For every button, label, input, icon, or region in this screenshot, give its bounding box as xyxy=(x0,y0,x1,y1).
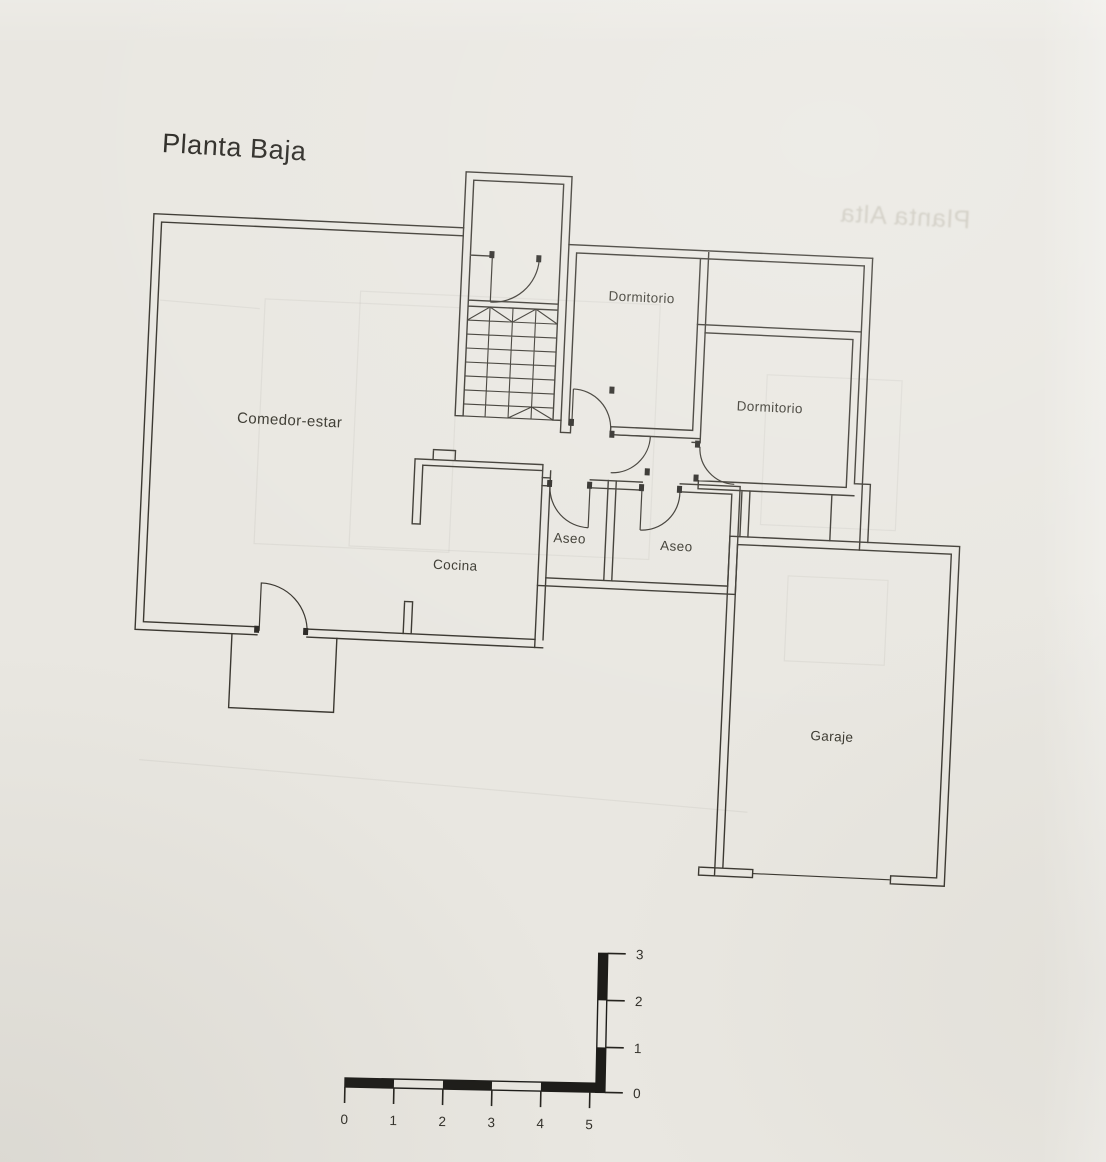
scale-h-label-3: 3 xyxy=(487,1115,495,1130)
staircase xyxy=(463,306,558,420)
entrance-door xyxy=(259,583,309,633)
wall-dormitorio-top xyxy=(560,245,872,451)
room-label-aseo-left: Aseo xyxy=(553,530,586,546)
scale-h-label-0: 0 xyxy=(340,1112,348,1127)
scale-v-label-0: 0 xyxy=(633,1086,641,1101)
room-label-dormitorio-right: Dormitorio xyxy=(736,398,803,416)
wall-cocina xyxy=(403,449,552,648)
scale-bar-vertical xyxy=(596,953,608,1092)
scale-h-label-2: 2 xyxy=(438,1114,446,1129)
scale-v-label-1: 1 xyxy=(634,1041,642,1056)
scale-h-label-4: 4 xyxy=(536,1116,544,1131)
floor-plan-canvas: Comedor-estar Dormitorio Dormitorio Coci… xyxy=(0,0,1106,1162)
scale-h-label-1: 1 xyxy=(389,1113,397,1128)
garage-door-line xyxy=(753,874,891,880)
wall-comedor xyxy=(135,214,561,648)
aseo-right-door xyxy=(640,490,680,532)
scale-bar-horizontal xyxy=(345,1078,600,1092)
room-label-comedor-estar: Comedor-estar xyxy=(237,410,343,432)
porch xyxy=(229,634,337,713)
room-label-garaje: Garaje xyxy=(810,728,854,745)
wall-garaje xyxy=(698,535,959,886)
room-label-aseo-right: Aseo xyxy=(660,538,693,554)
dormitorio-top-door xyxy=(572,389,613,430)
scale-bar: 0 1 2 3 4 5 0 1 2 3 xyxy=(340,941,643,1133)
room-label-cocina: Cocina xyxy=(433,557,478,574)
bleed-through-lines xyxy=(138,282,905,818)
hall-door xyxy=(611,435,651,475)
scale-v-label-2: 2 xyxy=(635,994,643,1009)
scale-v-label-3: 3 xyxy=(636,947,644,962)
dormitorio-right-door xyxy=(698,447,736,485)
floor-plan: Comedor-estar Dormitorio Dormitorio Coci… xyxy=(125,158,976,886)
aseo-left-door xyxy=(548,486,590,528)
room-label-dormitorio-top: Dormitorio xyxy=(608,288,675,306)
scale-h-label-5: 5 xyxy=(585,1117,593,1132)
